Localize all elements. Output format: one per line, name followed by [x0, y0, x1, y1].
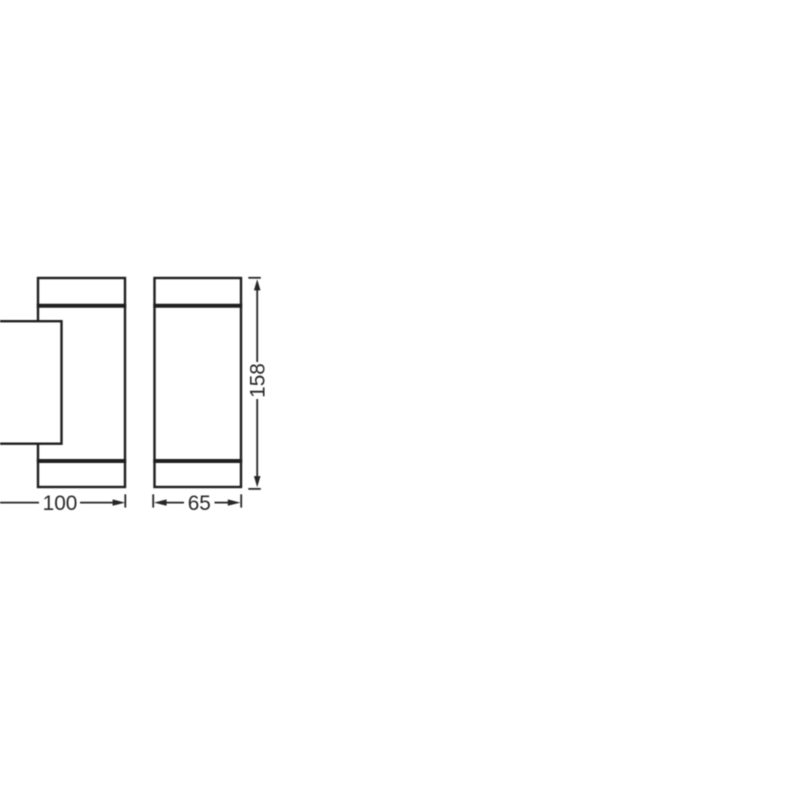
svg-text:158: 158: [247, 363, 270, 398]
svg-text:65: 65: [188, 492, 211, 515]
svg-text:100: 100: [43, 492, 78, 515]
